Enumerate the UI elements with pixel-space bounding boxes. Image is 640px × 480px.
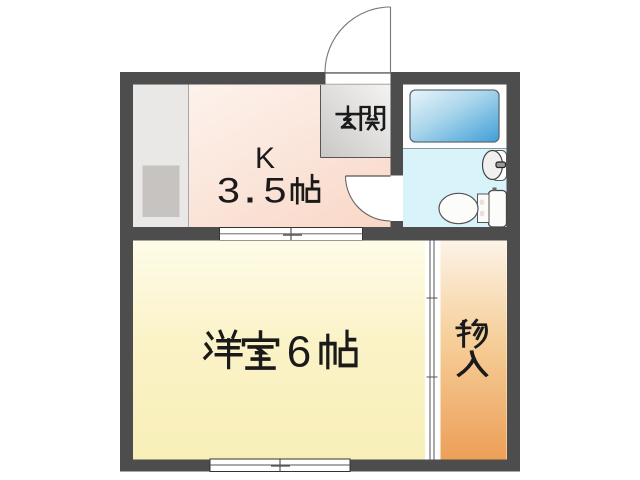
svg-text:5: 5 — [264, 172, 287, 211]
svg-text:3: 3 — [217, 172, 240, 211]
svg-text:6: 6 — [287, 327, 311, 376]
svg-text:K: K — [255, 142, 275, 175]
